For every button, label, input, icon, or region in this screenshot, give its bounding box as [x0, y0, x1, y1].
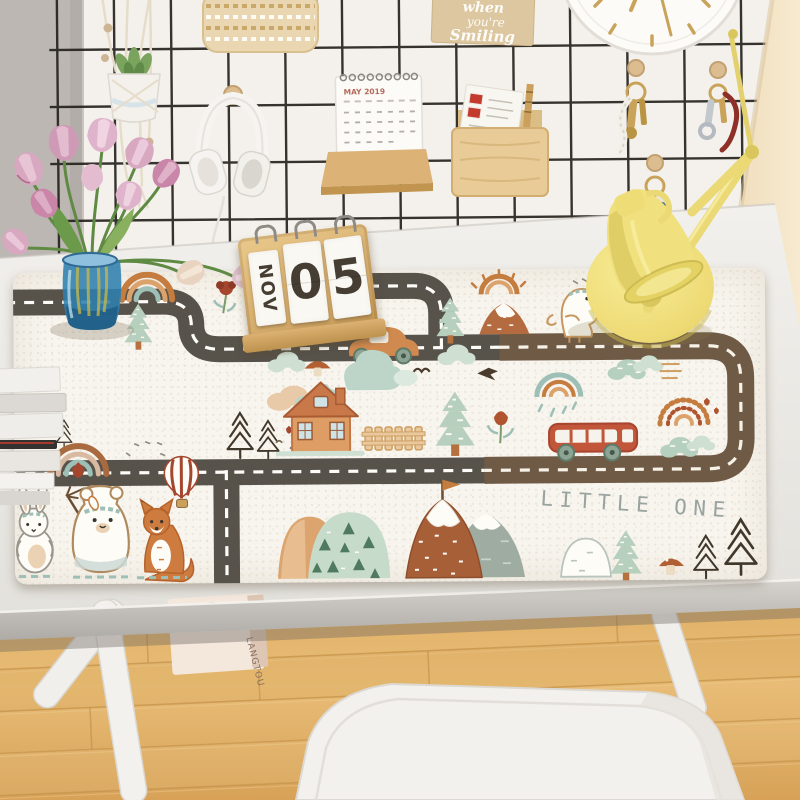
desk-mat: DR — [13, 267, 767, 584]
birds — [414, 368, 497, 380]
wall-calendar-title: MAY 2019 — [343, 87, 385, 97]
calendar-digit-2: 5 — [327, 247, 368, 307]
hanging-basket — [203, 0, 318, 52]
tree-bottom-right — [610, 530, 642, 582]
quote-card: when you're Smiling — [431, 0, 535, 47]
bush-bottom-right — [660, 435, 715, 457]
calendar-ring — [293, 219, 317, 240]
mushroom-2 — [655, 320, 676, 333]
track-marks — [573, 279, 598, 284]
line-pine — [694, 536, 718, 579]
calendar-month-text: NOV — [254, 262, 281, 314]
rainbow-rain — [537, 375, 581, 416]
mountain-top — [479, 303, 529, 334]
fox — [141, 499, 194, 581]
snow-mountains — [405, 479, 525, 578]
left-gray-wall — [0, 0, 82, 290]
mat-artwork: DR — [13, 267, 767, 584]
white-dome — [561, 538, 611, 576]
big-tree — [435, 391, 475, 456]
school-bus — [549, 423, 637, 461]
hanging-pot — [108, 74, 160, 122]
bunny — [16, 484, 53, 573]
chair-seat — [296, 684, 744, 800]
line-pine — [56, 420, 72, 448]
hot-air-balloon — [164, 456, 198, 507]
line-pine — [227, 413, 253, 458]
mushroom-bottom-right — [659, 556, 684, 575]
photo-scene: when you're Smiling — [0, 0, 800, 800]
bear-with-arrow — [66, 486, 129, 573]
quote-line3: Smiling — [449, 26, 515, 46]
fence — [362, 427, 425, 450]
confetti-marks — [126, 442, 165, 456]
calendar-ring — [333, 214, 357, 235]
calendar-digit-1: 0 — [286, 253, 325, 312]
line-pine — [257, 421, 278, 459]
flower-top — [214, 281, 236, 313]
rainbow-dotted — [660, 400, 708, 424]
flip-calendar: NOV 0 5 — [237, 223, 379, 344]
calendar-ring — [254, 224, 278, 245]
rainbow-sun — [472, 269, 525, 294]
mushroom-1 — [305, 361, 331, 377]
wall-calendar: MAY 2019 — [321, 73, 433, 195]
mat-title: LITTLE ONE — [540, 486, 733, 522]
flower-2 — [488, 411, 513, 443]
line-pine — [725, 519, 756, 574]
